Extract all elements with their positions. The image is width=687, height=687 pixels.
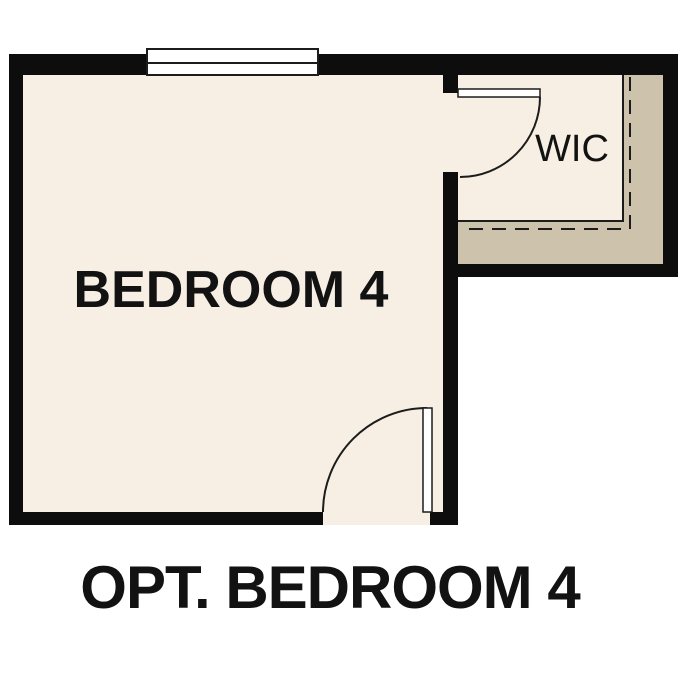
- left-wall: [9, 54, 23, 525]
- bedroom-right-wall-stub: [443, 75, 458, 93]
- wic-door-leaf: [458, 89, 540, 97]
- wic-label: WIC: [535, 128, 609, 170]
- bedroom-bottom-wall: [9, 512, 323, 525]
- outer-right-wall: [663, 54, 678, 277]
- closet-shading-bottom-strip: [458, 221, 663, 264]
- bedroom-door-leaf: [423, 408, 432, 512]
- plan-caption: OPT. BEDROOM 4: [80, 554, 581, 621]
- window-symbol: [147, 49, 318, 75]
- wic-bottom-wall: [443, 264, 678, 277]
- floor-plan: BEDROOM 4 WIC OPT. BEDROOM 4: [0, 0, 687, 687]
- bedroom-right-wall: [443, 172, 458, 525]
- floor-plan-page: BEDROOM 4 WIC OPT. BEDROOM 4: [0, 0, 687, 687]
- top-wall: [9, 54, 678, 75]
- bedroom-label: BEDROOM 4: [74, 261, 389, 319]
